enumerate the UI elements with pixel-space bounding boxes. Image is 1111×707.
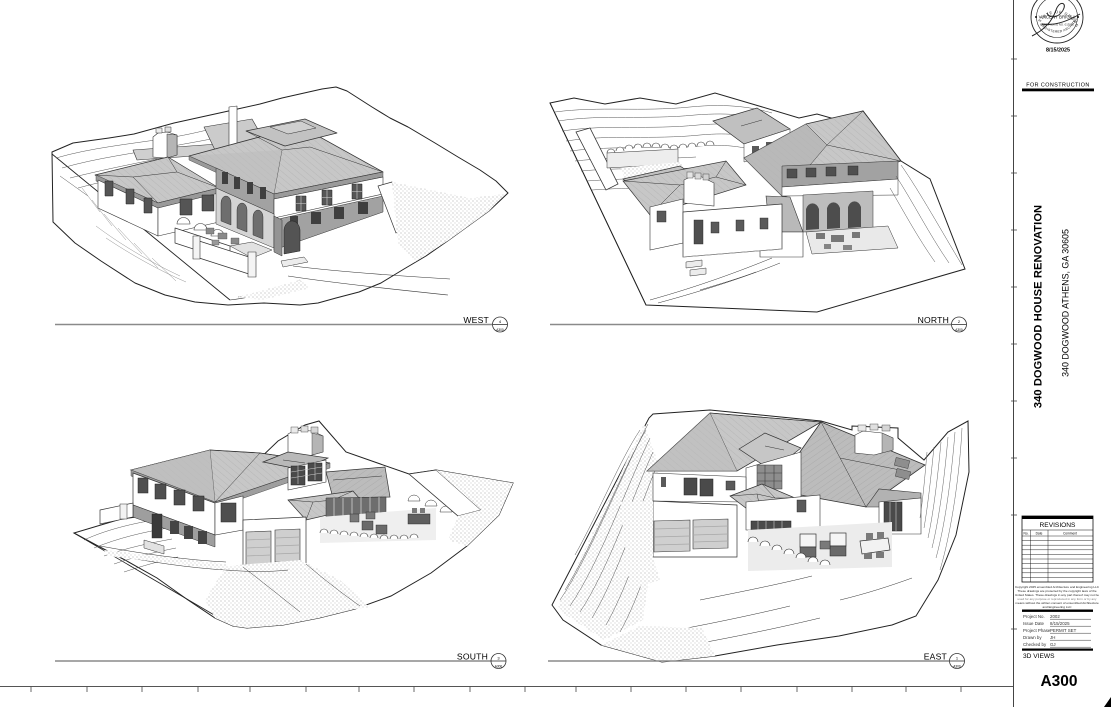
svg-text:2002: 2002 (1050, 614, 1060, 619)
svg-text:SOUTH: SOUTH (457, 651, 488, 661)
svg-text:Project Phase: Project Phase (1023, 628, 1051, 633)
svg-text:Checked by: Checked by (1023, 642, 1047, 647)
svg-text:Issue Date: Issue Date (1023, 621, 1045, 626)
svg-text:and Engineering LLC: and Engineering LLC (1042, 605, 1072, 609)
svg-text:PERMIT SET: PERMIT SET (1050, 628, 1077, 633)
svg-text:FOR CONSTRUCTION: FOR CONSTRUCTION (1026, 83, 1090, 89)
svg-text:GJ: GJ (1050, 642, 1056, 647)
svg-text:2: 2 (958, 319, 961, 324)
svg-text:EAST: EAST (924, 651, 948, 661)
svg-text:JH: JH (1050, 635, 1055, 640)
svg-text:3: 3 (497, 655, 500, 660)
svg-text:3D VIEWS: 3D VIEWS (1023, 653, 1055, 660)
svg-text:Date: Date (1036, 532, 1043, 536)
svg-text:WEST: WEST (463, 315, 489, 325)
svg-text:A300: A300 (953, 664, 961, 668)
svg-text:1: 1 (956, 655, 959, 660)
svg-text:Drawn by: Drawn by (1023, 635, 1042, 640)
svg-text:REVISIONS: REVISIONS (1040, 522, 1077, 529)
svg-text:8/15/2025: 8/15/2025 (1050, 621, 1070, 626)
svg-text:A300: A300 (495, 664, 503, 668)
svg-text:STATE OF GEORGIA: STATE OF GEORGIA (0, 0, 1079, 28)
svg-text:Comment: Comment (1063, 532, 1077, 536)
svg-text:NORTH: NORTH (918, 315, 949, 325)
svg-text:No.: No. (1024, 532, 1029, 536)
svg-text:A300: A300 (955, 328, 963, 332)
svg-text:A300: A300 (496, 328, 504, 332)
svg-text:4: 4 (499, 319, 502, 324)
svg-text:340 DOGWOOD ATHENS, GA 30605: 340 DOGWOOD ATHENS, GA 30605 (1060, 229, 1070, 377)
svg-text:340 DOGWOOD HOUSE RENOVATION: 340 DOGWOOD HOUSE RENOVATION (1033, 205, 1045, 408)
svg-text:Project No.: Project No. (1023, 614, 1045, 619)
svg-text:REGISTERED ARCHITECT: REGISTERED ARCHITECT (0, 0, 1078, 34)
svg-text:8/15/2025: 8/15/2025 (1046, 48, 1070, 54)
svg-text:A300: A300 (1040, 673, 1077, 690)
